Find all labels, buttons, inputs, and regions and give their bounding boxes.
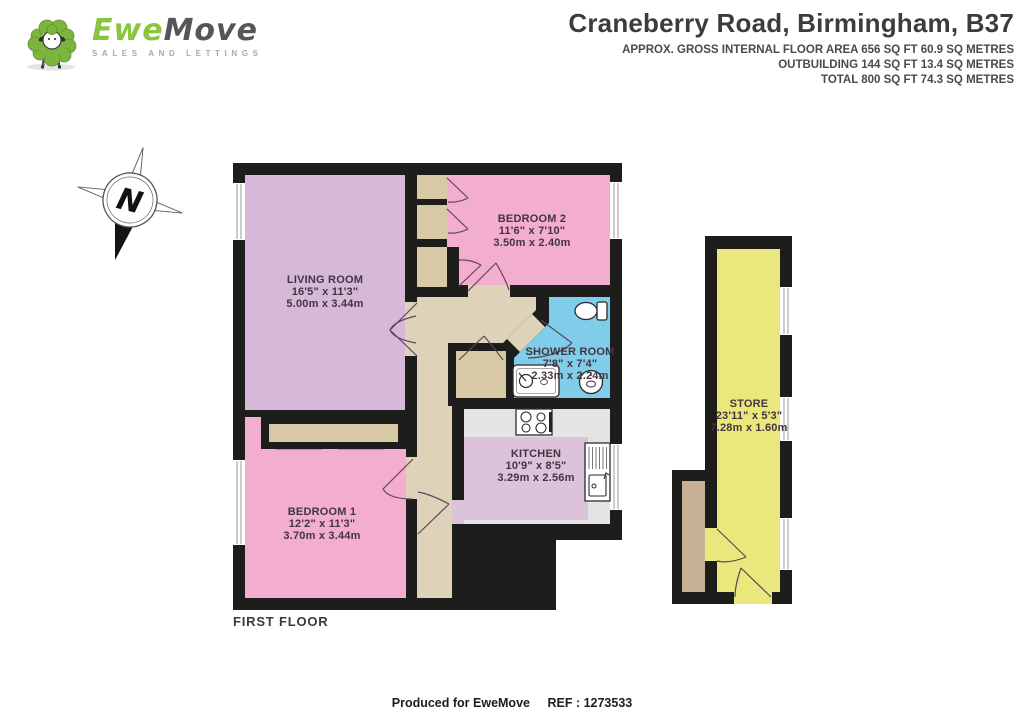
floorplan-drawing: N (0, 0, 1024, 724)
footer-ref: REF : 1273533 (547, 696, 632, 710)
living-room-metric: 5.00m x 3.44m (286, 298, 363, 310)
sink-fixture (585, 443, 610, 501)
footer: Produced for EweMove REF : 1273533 (0, 696, 1024, 710)
bedroom1-name: BEDROOM 1 (288, 506, 356, 518)
store-imperial: 23'11" x 5'3" (716, 410, 783, 422)
hall-store-cupboard (456, 351, 506, 398)
closet-1 (417, 175, 447, 199)
window-bedroom2-right (610, 182, 622, 239)
bedroom2-imperial: 11'6" x 7'10" (499, 225, 566, 237)
living-room-imperial: 16'5" x 11'3" (292, 286, 359, 298)
closet-3 (417, 247, 447, 287)
living-room-name: LIVING ROOM (287, 274, 363, 286)
compass-icon: N (63, 135, 196, 274)
bedroom1-wardrobe (269, 424, 398, 442)
shower-room-metric: 2.33m x 2.24m (531, 370, 608, 382)
kitchen-hall-opening (452, 500, 464, 524)
living-door-opening (405, 302, 417, 356)
bedroom2-name: BEDROOM 2 (498, 213, 566, 225)
shower-room-imperial: 7'8" x 7'4" (543, 358, 598, 370)
living-room-label: LIVING ROOM 16'5" x 11'3" 5.00m x 3.44m (286, 274, 363, 310)
bedroom2-door-opening (468, 285, 510, 297)
store-name: STORE (730, 398, 769, 410)
store-bottom-door-opening (734, 592, 772, 604)
kitchen-imperial: 10'9" x 8'5" (506, 460, 567, 472)
footer-produced: Produced for EweMove (392, 696, 530, 710)
kitchen-name: KITCHEN (511, 448, 561, 460)
window-store-3 (780, 518, 792, 570)
store-metric: 7.28m x 1.60m (710, 422, 787, 434)
window-bedroom1-left (233, 460, 245, 545)
hob-fixture (516, 409, 552, 435)
floorplan-page: EweMove SALES AND LETTINGS Craneberry Ro… (0, 0, 1024, 724)
bedroom2-label: BEDROOM 2 11'6" x 7'10" 3.50m x 2.40m (493, 213, 570, 249)
bedroom2-metric: 3.50m x 2.40m (493, 237, 570, 249)
floor-label: FIRST FLOOR (233, 614, 328, 629)
window-kitchen-right (610, 444, 622, 510)
bedroom1-door-opening (406, 457, 417, 499)
store-side-door-opening (705, 528, 717, 561)
bedroom1-imperial: 12'2" x 11'3" (289, 518, 356, 530)
shower-room-name: SHOWER ROOM (526, 346, 615, 358)
toilet-fixture (575, 302, 607, 320)
bedroom1-label: BEDROOM 1 12'2" x 11'3" 3.70m x 3.44m (283, 506, 360, 542)
window-living-left (233, 183, 245, 240)
bedroom1-metric: 3.70m x 3.44m (283, 530, 360, 542)
kitchen-metric: 3.29m x 2.56m (497, 472, 574, 484)
closet-2 (417, 205, 447, 239)
store-porch (682, 481, 705, 592)
window-store-1 (780, 287, 792, 335)
